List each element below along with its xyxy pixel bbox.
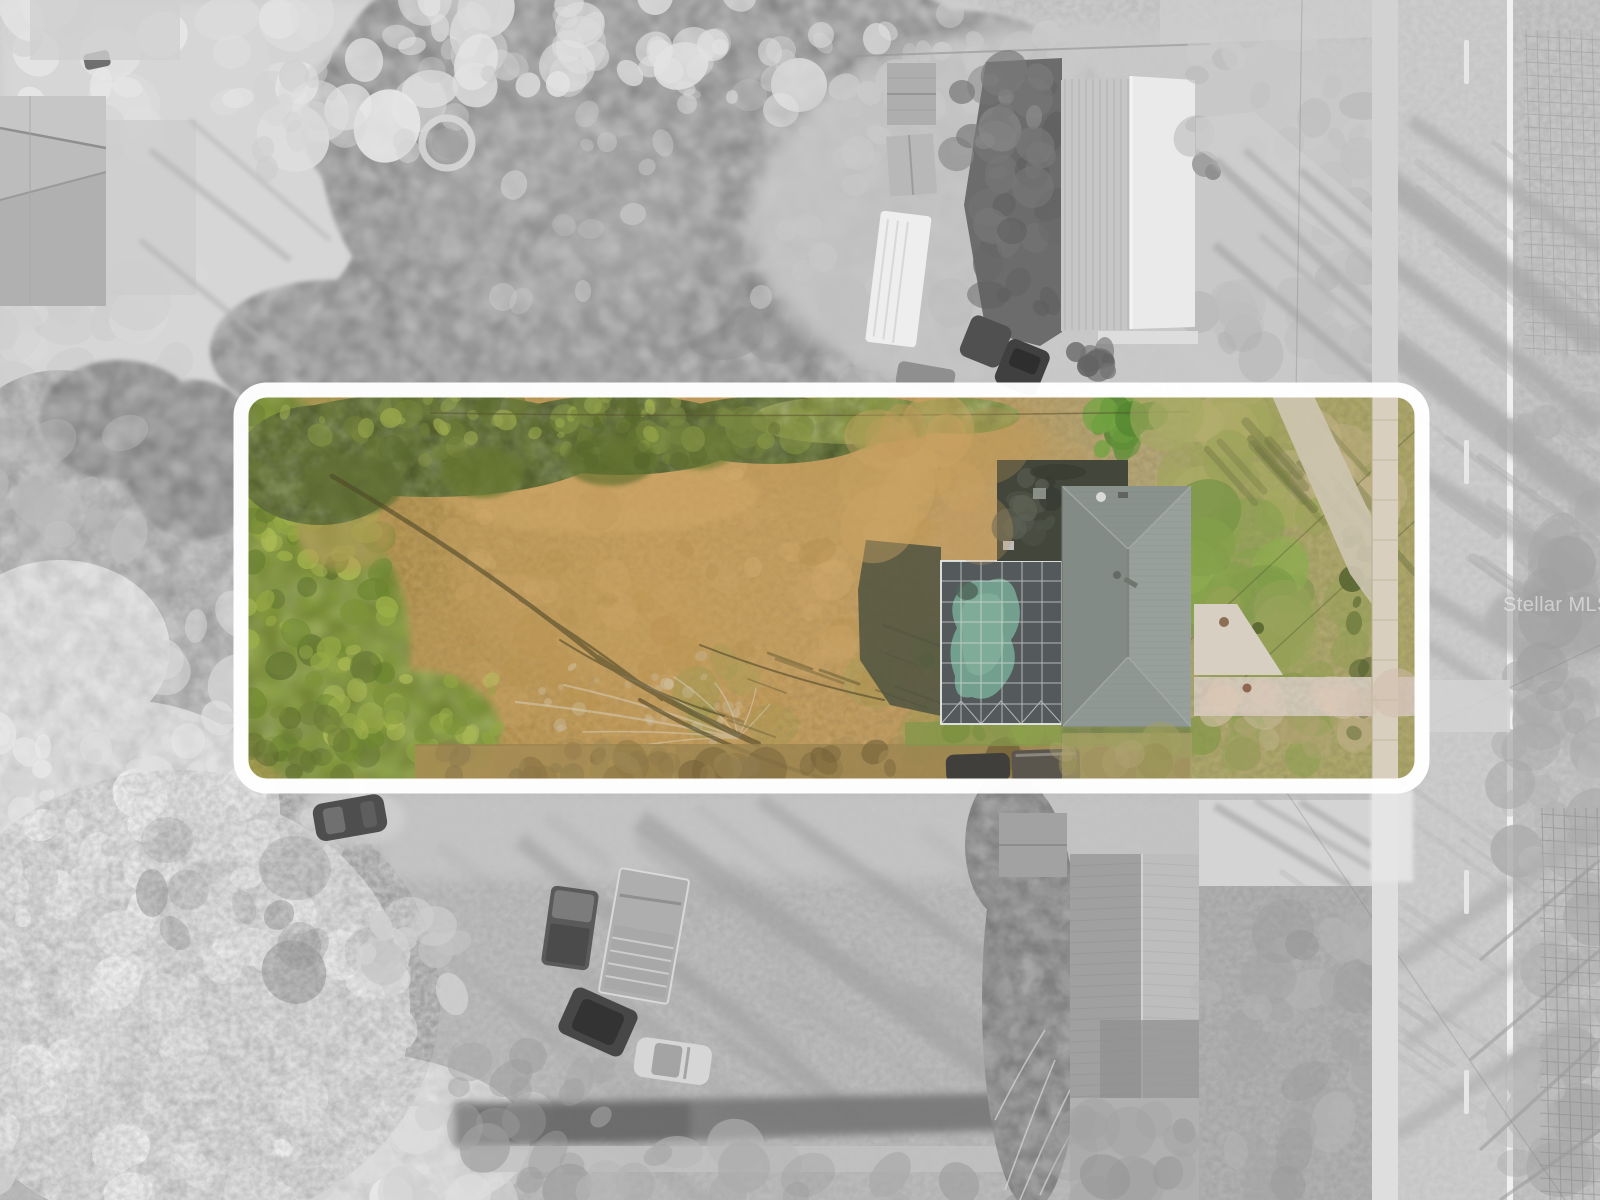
svg-text:Stellar MLS: Stellar MLS	[1503, 594, 1600, 616]
